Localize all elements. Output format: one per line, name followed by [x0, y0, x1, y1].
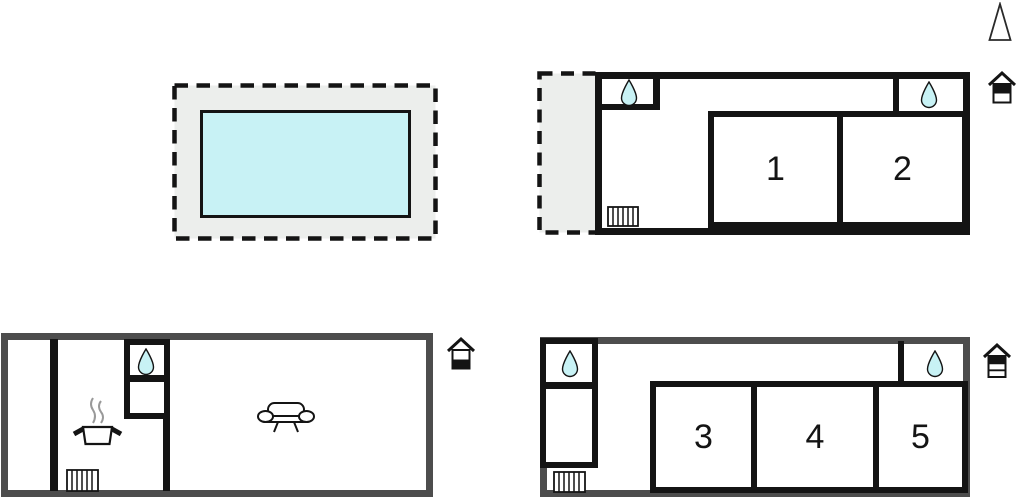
- room-5: 5: [873, 381, 968, 493]
- room-4: 4: [751, 381, 879, 493]
- room-2-label: 2: [893, 150, 912, 189]
- room-5-label: 5: [911, 418, 930, 457]
- bathroom-water-drop-icon: [919, 81, 939, 109]
- sofa-icon: [256, 400, 316, 435]
- floor-plan-page: 1 2: [0, 0, 1024, 500]
- swimming-pool: [200, 110, 411, 218]
- room-2: 2: [837, 111, 968, 228]
- north-arrow-icon: [987, 2, 1013, 42]
- bathroom-water-drop-icon: [619, 79, 639, 107]
- room-3-label: 3: [694, 418, 713, 457]
- house-level-icon-ground-floor: [446, 336, 476, 372]
- room-4-label: 4: [806, 418, 825, 457]
- wall: [50, 339, 58, 491]
- radiator-icon: [607, 206, 639, 227]
- house-level-icon-top-floor: [982, 342, 1012, 380]
- upper-floor-terrace-dashed: [537, 71, 601, 235]
- radiator-icon: [66, 469, 99, 492]
- room-3: 3: [650, 381, 757, 493]
- kitchen-stove-pot-icon: [68, 394, 124, 450]
- closet-cabin: [124, 376, 170, 419]
- radiator-icon: [553, 471, 586, 493]
- bathroom-water-drop-icon: [560, 350, 580, 378]
- closet-cabin: [540, 383, 598, 468]
- room-1-label: 1: [766, 150, 785, 189]
- room-1: 1: [708, 111, 843, 228]
- house-level-icon-upper-floor: [986, 70, 1018, 106]
- bathroom-water-drop-icon: [925, 350, 945, 378]
- bathroom-water-drop-icon: [136, 348, 156, 376]
